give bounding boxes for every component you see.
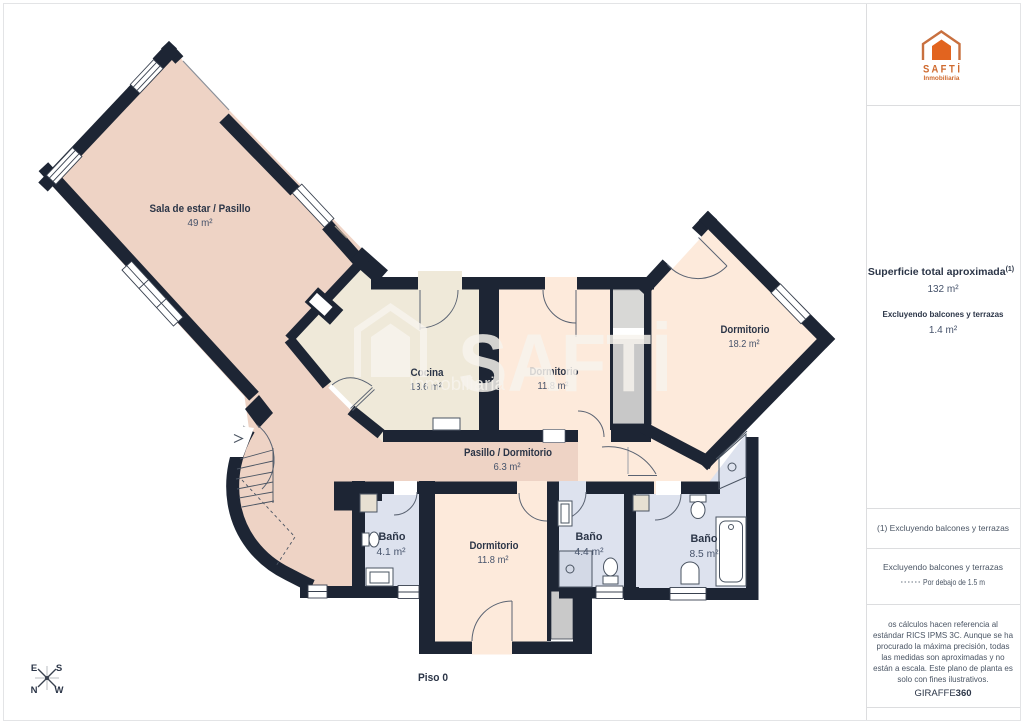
svg-text:E: E (31, 663, 37, 674)
svg-text:Por debajo de 1.5 m: Por debajo de 1.5 m (923, 577, 985, 587)
svg-text:S: S (56, 663, 62, 674)
svg-text:Baño: Baño (691, 533, 718, 545)
svg-text:1.4 m²: 1.4 m² (929, 325, 958, 336)
svg-text:6.3 m²: 6.3 m² (494, 462, 522, 473)
svg-text:Inmobiliaria: Inmobiliaria (924, 76, 961, 82)
svg-text:Superficie total aproximada(1): Superficie total aproximada(1) (868, 266, 1014, 278)
svg-text:4.4 m²: 4.4 m² (575, 547, 605, 558)
svg-text:SAFTİ: SAFTİ (458, 318, 672, 409)
svg-text:Baño: Baño (379, 531, 406, 543)
svg-text:18.2 m²: 18.2 m² (729, 339, 761, 350)
svg-text:solo con fines ilustrativos.: solo con fines ilustrativos. (897, 675, 988, 684)
svg-text:Excluyendo balcones y terrazas: Excluyendo balcones y terrazas (883, 562, 1003, 572)
svg-text:están a escala. Este plano de: están a escala. Este plano de planta es (873, 664, 1013, 673)
svg-text:11.8 m²: 11.8 m² (478, 555, 510, 566)
svg-text:4.1 m²: 4.1 m² (377, 547, 407, 558)
svg-text:(1) Excluyendo balcones y terr: (1) Excluyendo balcones y terrazas (877, 523, 1009, 533)
svg-text:S A F T İ: S A F T İ (923, 63, 960, 76)
svg-text:Inmobiliaria: Inmobiliaria (409, 374, 506, 394)
svg-text:Baño: Baño (576, 531, 603, 543)
svg-text:Pasillo / Dormitorio: Pasillo / Dormitorio (464, 447, 552, 459)
svg-text:8.5 m²: 8.5 m² (690, 549, 720, 560)
svg-text:Piso 0: Piso 0 (418, 672, 448, 684)
svg-text:os cálculos hacen referencia a: os cálculos hacen referencia al (888, 620, 998, 629)
svg-text:49 m²: 49 m² (188, 218, 214, 229)
svg-text:procurado la máxima precisión,: procurado la máxima precisión, todas (877, 642, 1010, 651)
svg-text:GIRAFFE360: GIRAFFE360 (914, 688, 971, 699)
svg-text:N: N (31, 685, 38, 696)
svg-text:Sala de estar / Pasillo: Sala de estar / Pasillo (150, 203, 251, 215)
svg-text:las medidas son aproximadas y: las medidas son aproximadas y no (881, 653, 1005, 662)
svg-text:Dormitorio: Dormitorio (721, 324, 770, 336)
svg-text:W: W (55, 685, 64, 696)
svg-text:Excluyendo balcones y terrazas: Excluyendo balcones y terrazas (883, 309, 1004, 319)
svg-text:Dormitorio: Dormitorio (470, 540, 519, 552)
svg-text:estándar RICS IPMS 3C. Aunque: estándar RICS IPMS 3C. Aunque se ha (873, 631, 1014, 640)
svg-text:132 m²: 132 m² (927, 284, 959, 295)
